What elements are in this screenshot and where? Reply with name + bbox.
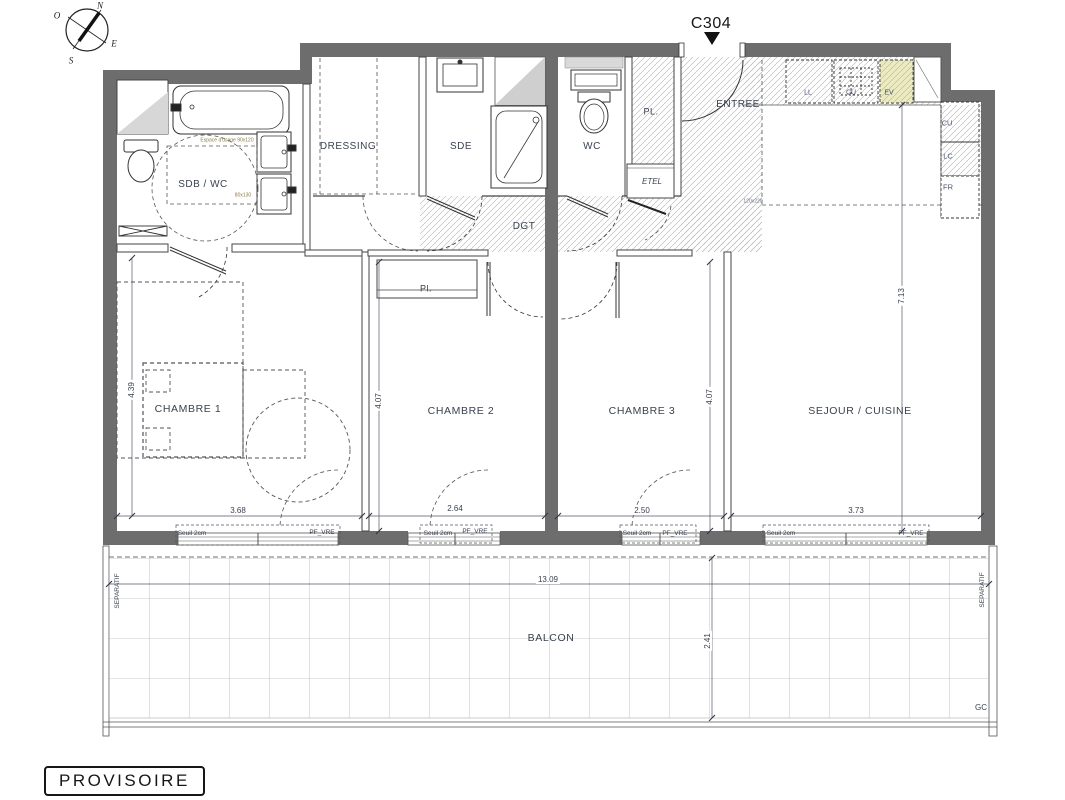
room-label-wc: WC <box>583 142 601 152</box>
dim-chambre3-width: 2.50 <box>632 507 652 515</box>
appliance-label-cu: CU <box>942 119 953 127</box>
bathtub <box>171 86 289 134</box>
sde-duct <box>495 57 545 105</box>
top-wall-window <box>914 57 941 102</box>
room-label-chambre3: CHAMBRE 3 <box>609 406 676 417</box>
room-label-chambre1: CHAMBRE 1 <box>155 404 222 415</box>
dim-chambre3-depth: 4.07 <box>706 387 714 407</box>
dim-balcon-depth: 2.41 <box>704 631 712 651</box>
room-label-entree: ENTREE <box>716 100 760 110</box>
sde-sink <box>437 58 483 92</box>
provisoire-stamp: PROVISOIRE <box>44 766 205 796</box>
compass-north-label: N <box>97 2 103 11</box>
appliance-label-fr: FR <box>943 183 953 191</box>
chambre2-door <box>487 262 543 317</box>
compass-icon <box>66 9 108 51</box>
compass-west-label: O <box>54 12 61 21</box>
gc-label: GC <box>975 704 987 712</box>
wc-fixtures <box>565 57 623 133</box>
window3-type-label: PF_VRE <box>662 531 687 538</box>
room-label-sejour-cuisine: SEJOUR / CUISINE <box>808 406 912 417</box>
appliance-label-ev: EV <box>884 90 893 97</box>
appliance-label-lc: LC <box>943 152 953 160</box>
appliance-label-cu-hob: CU <box>846 90 856 97</box>
annotation-espace-usage: Espace d'usage 90x120 <box>200 139 253 144</box>
annotation-bed-zone: 80x130 <box>235 194 251 199</box>
room-label-dressing: DRESSING <box>320 142 376 152</box>
room-label-dgt: DGT <box>513 222 536 232</box>
window4-type-label: PF_VRE <box>898 531 923 538</box>
dim-chambre2-width: 2.64 <box>445 505 465 513</box>
toilet-sdb <box>124 140 158 182</box>
window3-seuil-label: Seuil 2cm <box>623 531 652 538</box>
window1-type-label: PF_VRE <box>309 530 334 537</box>
dim-sejour-width: 3.73 <box>846 507 866 515</box>
window4-seuil-label: Seuil 2cm <box>767 531 796 538</box>
chambre3-door <box>560 262 619 319</box>
dim-sejour-depth: 7.13 <box>898 286 906 306</box>
double-washbasin <box>257 132 296 214</box>
room-label-sdb-wc: SDB / WC <box>178 180 228 190</box>
floor-plan-page: C304 N O E S SDB / WC DRESSING SDE WC PL… <box>0 0 1065 800</box>
sdb-door <box>170 247 227 297</box>
towel-rail <box>119 226 167 236</box>
separatif-left-label: SEPARATIF <box>115 573 122 608</box>
chambre1-furniture <box>117 282 350 502</box>
window2-seuil-label: Seuil 2cm <box>424 531 453 538</box>
annotation-entry-zone: 120x220 <box>743 200 762 205</box>
floor-plan-drawing <box>0 0 1065 800</box>
vanity-cabinet <box>117 80 168 134</box>
window1-seuil-label: Seuil 2cm <box>178 531 207 538</box>
dim-balcon-width: 13.09 <box>536 576 560 584</box>
dressing-wardrobe <box>313 58 418 194</box>
separatif-right-label: SEPARATIF <box>980 572 987 607</box>
dressing-door-arc <box>363 196 418 251</box>
room-label-chambre2: CHAMBRE 2 <box>428 406 495 417</box>
room-label-pl-entry: PL. <box>643 108 658 117</box>
shower <box>491 106 547 188</box>
compass-east-label: E <box>111 40 117 49</box>
room-label-sde: SDE <box>450 142 472 152</box>
closet-label-pl: Pl. <box>420 285 432 294</box>
entrance-marker-arrow <box>704 32 720 45</box>
compass-south-label: S <box>69 57 74 66</box>
window2-type-label: PF_VRE <box>462 529 487 536</box>
dim-chambre1-depth: 4.39 <box>128 380 136 400</box>
room-label-balcon: BALCON <box>528 633 575 644</box>
appliance-label-ll: LL <box>804 90 812 97</box>
room-label-etel: ETEL <box>642 178 662 186</box>
unit-label: C304 <box>691 16 731 32</box>
dim-chambre2-depth: 4.07 <box>375 391 383 411</box>
dim-chambre1-width: 3.68 <box>228 507 248 515</box>
